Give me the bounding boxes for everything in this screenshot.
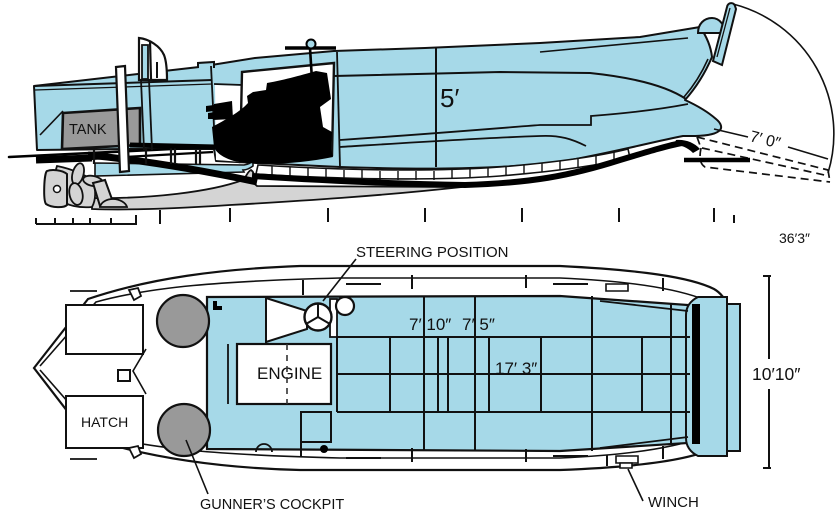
svg-text:STEERING POSITION: STEERING POSITION	[356, 244, 509, 261]
svg-text:TANK: TANK	[69, 122, 107, 138]
svg-text:17′ 3″: 17′ 3″	[495, 359, 537, 378]
svg-text:HATCH: HATCH	[81, 414, 128, 430]
svg-text:ENGINE: ENGINE	[257, 364, 322, 383]
svg-text:7′ 5″: 7′ 5″	[462, 315, 495, 334]
svg-text:5′: 5′	[440, 83, 459, 113]
svg-text:36′3″: 36′3″	[779, 230, 810, 246]
svg-text:GUNNER’S COCKPIT: GUNNER’S COCKPIT	[200, 497, 344, 513]
svg-text:7′ 10″: 7′ 10″	[409, 315, 451, 334]
svg-text:10′10″: 10′10″	[752, 364, 800, 384]
svg-text:WINCH: WINCH	[648, 494, 699, 511]
